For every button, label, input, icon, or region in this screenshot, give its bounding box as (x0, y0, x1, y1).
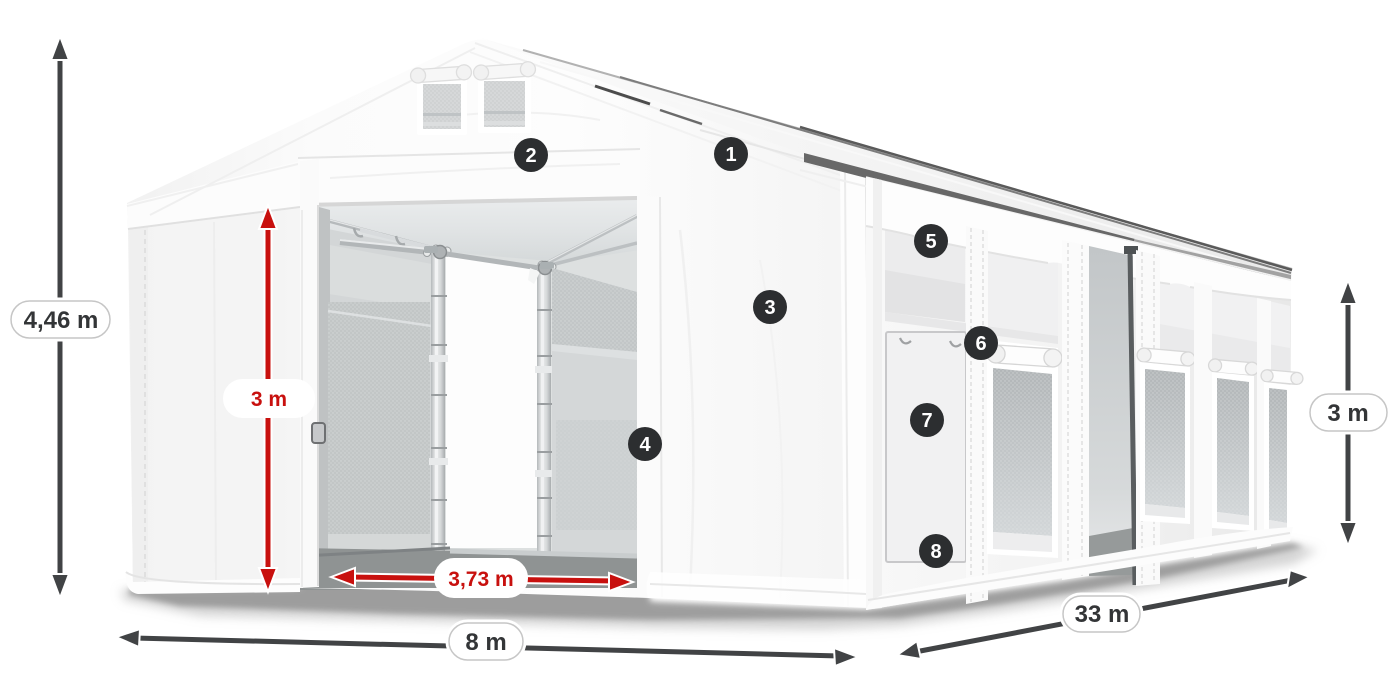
svg-text:6: 6 (975, 333, 986, 355)
svg-text:33 m: 33 m (1075, 601, 1130, 628)
svg-text:4,46 m: 4,46 m (24, 307, 99, 334)
svg-text:1: 1 (725, 144, 736, 166)
svg-text:7: 7 (921, 410, 932, 432)
svg-text:2: 2 (525, 145, 536, 167)
svg-text:5: 5 (925, 231, 936, 253)
svg-text:3,73 m: 3,73 m (448, 568, 513, 591)
svg-text:4: 4 (639, 434, 651, 456)
svg-text:8 m: 8 m (465, 629, 506, 656)
svg-text:3 m: 3 m (251, 388, 287, 411)
svg-text:8: 8 (930, 541, 941, 563)
svg-text:3 m: 3 m (1327, 400, 1368, 427)
svg-text:3: 3 (764, 297, 775, 319)
